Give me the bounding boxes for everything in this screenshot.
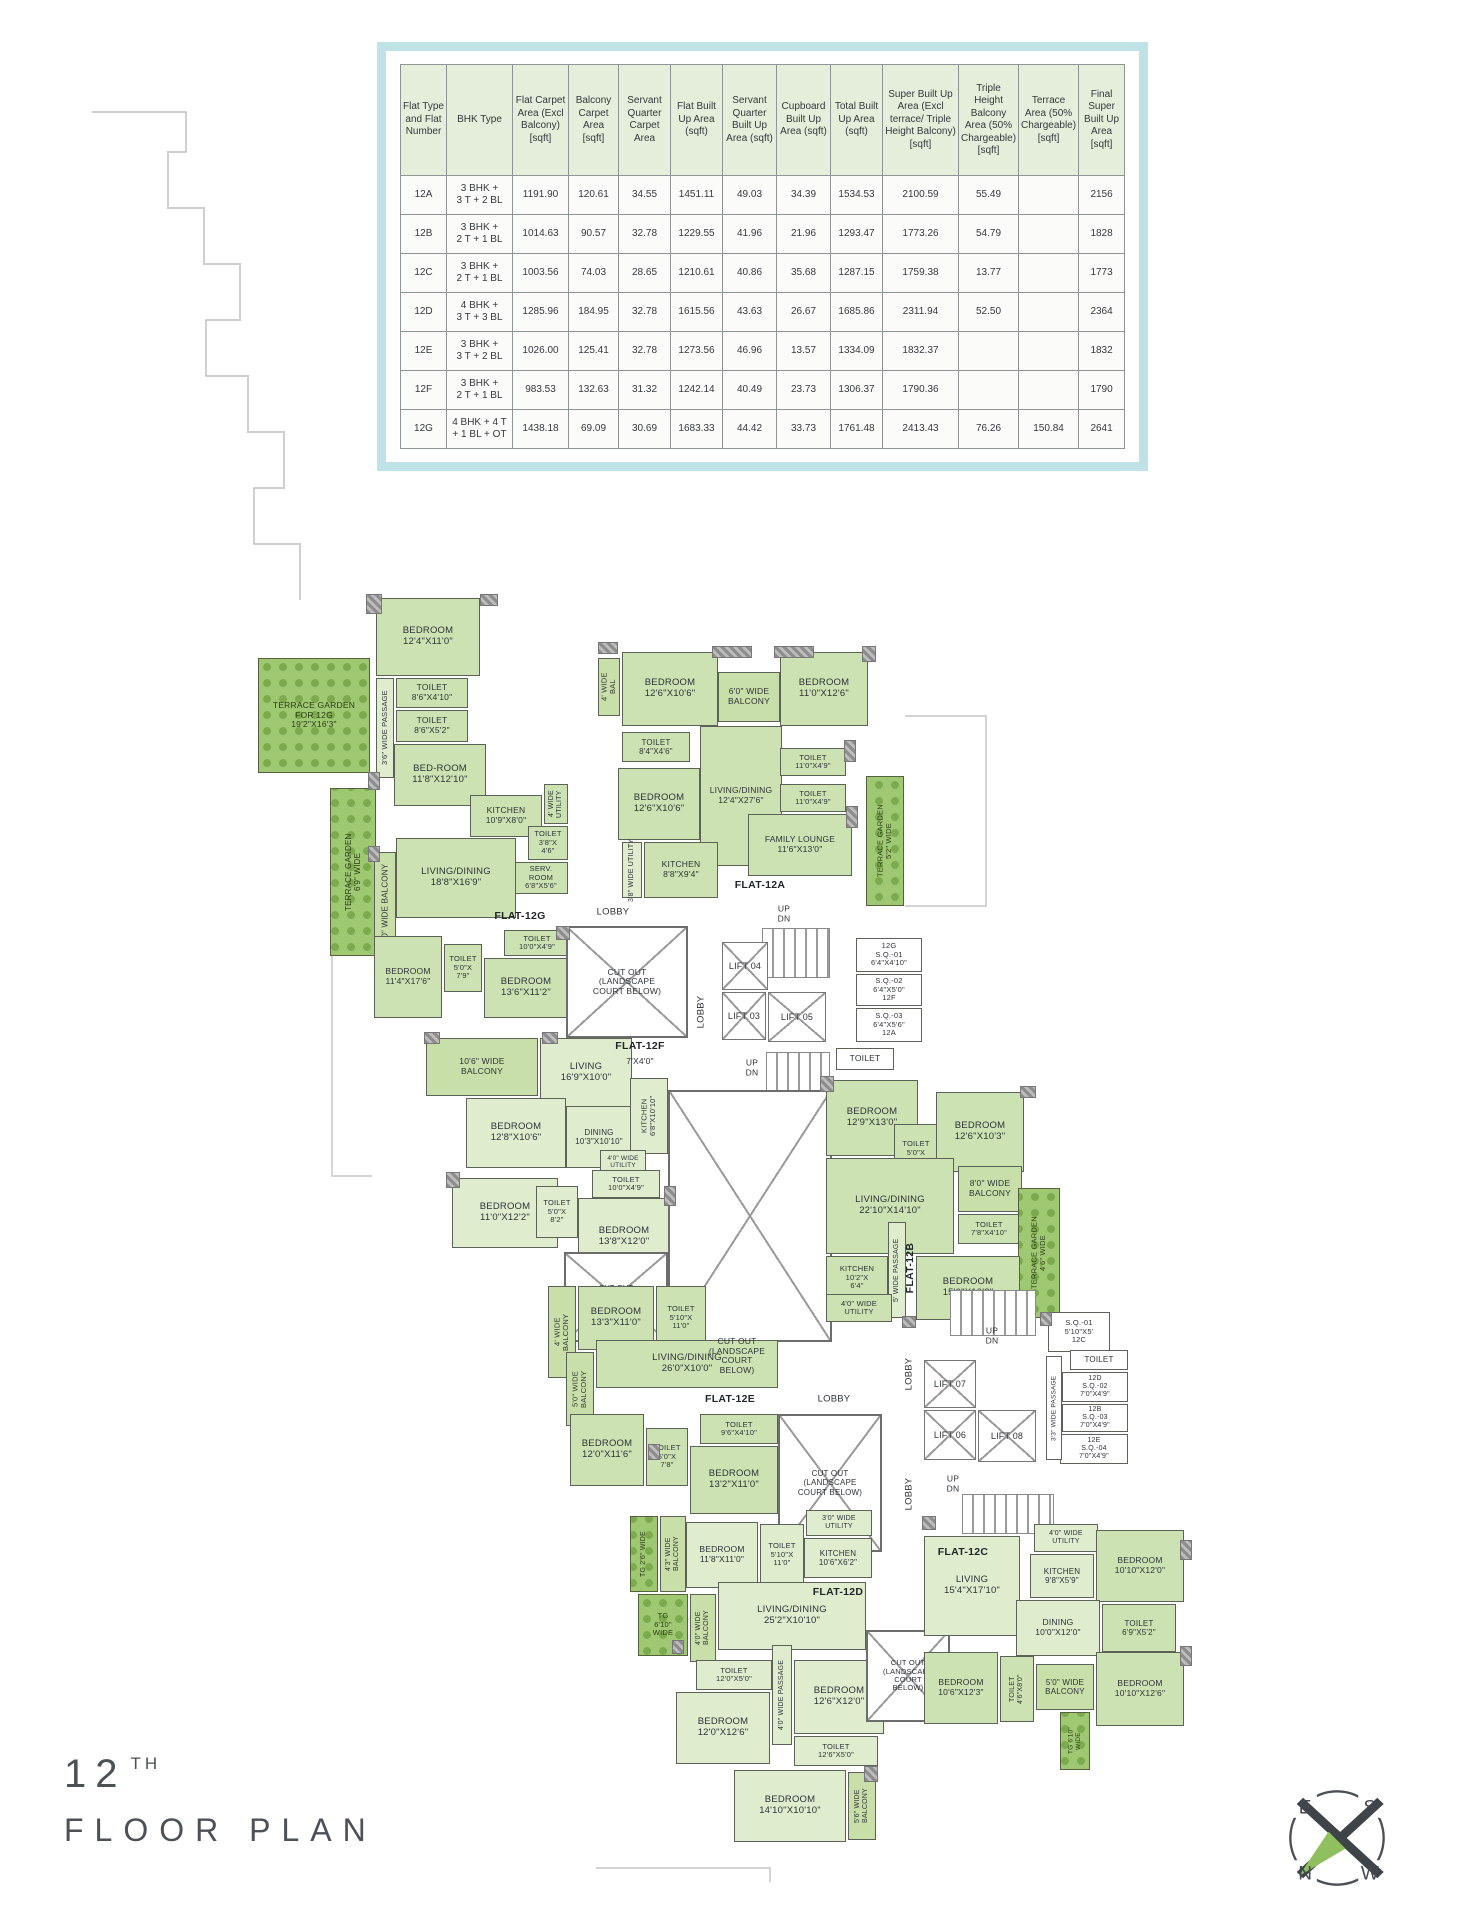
room: S.Q.-036'4"X5'6"12A bbox=[856, 1008, 922, 1042]
room: TOILET12'0"X5'0" bbox=[696, 1660, 772, 1690]
balcony: 4' WIDEBAL bbox=[598, 658, 620, 716]
text-label: LOBBY bbox=[905, 1478, 916, 1511]
column-block bbox=[542, 1032, 558, 1044]
lift: LIFT 06 bbox=[924, 1410, 976, 1460]
terrace-garden: TG 2'6" WIDE bbox=[630, 1516, 658, 1592]
room: TOILET10'0"X4'9" bbox=[592, 1170, 660, 1198]
text-label: CUT OUT(LANDSCAPECOURTBELOW) bbox=[709, 1337, 765, 1375]
room: 3'3" WIDE PASSAGE bbox=[1046, 1356, 1062, 1460]
column-block bbox=[368, 846, 380, 862]
text-label: 7'X4'0" bbox=[626, 1057, 654, 1067]
room: KITCHEN6'8"X10'10" bbox=[630, 1078, 668, 1154]
terrace-garden: TERRACE GARDEN6'9" WIDE bbox=[330, 788, 376, 956]
room: BEDROOM10'6"X12'3" bbox=[924, 1652, 998, 1724]
room: TOILET12'6"X5'0" bbox=[794, 1736, 878, 1766]
room: TOILET9'6"X4'10" bbox=[700, 1414, 778, 1444]
room: BEDROOM11'4"X17'6" bbox=[374, 936, 442, 1018]
flat-label: FLAT-12C bbox=[938, 1547, 989, 1559]
room: KITCHEN8'8"X9'4" bbox=[644, 842, 718, 898]
room: TOILET8'6"X4'10" bbox=[396, 678, 468, 708]
column-block bbox=[1180, 1646, 1192, 1666]
text-label: LOBBY bbox=[905, 1358, 916, 1391]
lift: LIFT 03 bbox=[722, 992, 766, 1040]
room: TOILET11'0"X4'9" bbox=[780, 784, 846, 812]
compass-west-label: W bbox=[1361, 1863, 1379, 1884]
room: TOILET bbox=[836, 1048, 894, 1070]
room: 12DS.Q.-027'0"X4'9" bbox=[1062, 1372, 1128, 1402]
floor-plan: TERRACE GARDENFOR 12G19'2"X16'3"TERRACE … bbox=[0, 0, 1457, 1914]
room: BEDROOM12'8"X10'6" bbox=[466, 1098, 566, 1168]
flat-label: FLAT-12A bbox=[735, 880, 786, 892]
room: TOILET bbox=[1070, 1350, 1128, 1370]
terrace-garden: TG 6'10"WIDE bbox=[1060, 1712, 1090, 1770]
balcony: 5'6" WIDEBALCONY bbox=[848, 1772, 876, 1840]
cutout: CUT OUT(LANDSCAPECOURT BELOW) bbox=[566, 926, 688, 1038]
room: TOILET5'10"X11'0" bbox=[760, 1524, 804, 1586]
floor-plan-page: Flat Type and Flat NumberBHK TypeFlat Ca… bbox=[0, 0, 1457, 1914]
column-block bbox=[846, 806, 858, 828]
room: 4'0" WIDEUTILITY bbox=[826, 1294, 892, 1322]
room: TOILET5'0"X7'9" bbox=[444, 944, 482, 992]
room: BEDROOM12'0"X12'6" bbox=[676, 1692, 770, 1764]
room: BEDROOM14'10"X10'10" bbox=[734, 1770, 846, 1842]
compass-north-label: N bbox=[1298, 1863, 1312, 1884]
column-block bbox=[774, 646, 814, 658]
room: 12BS.Q.-037'0"X4'9" bbox=[1062, 1404, 1128, 1432]
room: S.Q.-026'4"X5'0"12F bbox=[856, 974, 922, 1006]
text-label: UPDN bbox=[986, 1326, 999, 1345]
column-block bbox=[864, 1766, 878, 1782]
text-label: LOBBY bbox=[597, 908, 630, 919]
column-block bbox=[648, 1444, 660, 1460]
room: BEDROOM12'4"X11'0" bbox=[376, 598, 480, 676]
room: TOILET8'6"X5'2" bbox=[396, 710, 468, 742]
room: BEDROOM12'0"X11'6" bbox=[570, 1414, 644, 1486]
text-label: LOBBY bbox=[697, 996, 708, 1029]
room: BEDROOM13'6"X11'2" bbox=[484, 958, 568, 1018]
column-block bbox=[446, 1172, 460, 1188]
column-block bbox=[664, 1186, 676, 1206]
room: FAMILY LOUNGE11'6"X13'0" bbox=[748, 814, 852, 876]
room: 3'0" WIDEUTILITY bbox=[806, 1510, 872, 1536]
lift: LIFT 07 bbox=[924, 1360, 976, 1408]
lift: LIFT 08 bbox=[978, 1410, 1036, 1462]
room: LIVING/DINING18'8"X16'9" bbox=[396, 838, 516, 918]
terrace-garden: TERRACE GARDENFOR 12G19'2"X16'3" bbox=[258, 658, 370, 773]
room: 3'6" WIDE PASSAGE bbox=[376, 678, 394, 778]
room: 4'0" WIDEUTILITY bbox=[1034, 1524, 1098, 1552]
balcony: 5'0" WIDEBALCONY bbox=[1036, 1664, 1094, 1710]
room: KITCHEN9'8"X5'9" bbox=[1030, 1554, 1094, 1598]
floor-number-suffix: TH bbox=[131, 1754, 162, 1773]
room: TOILET4'6"X8'0" bbox=[1000, 1656, 1034, 1722]
room: BEDROOM11'8"X11'0" bbox=[686, 1522, 758, 1588]
column-block bbox=[1040, 1312, 1052, 1326]
column-block bbox=[1020, 1086, 1036, 1098]
column-block bbox=[844, 740, 856, 762]
room: BEDROOM12'6"X10'6" bbox=[618, 768, 700, 840]
balcony: 6'0" WIDEBALCONY bbox=[718, 672, 780, 722]
stairs bbox=[762, 928, 830, 978]
lift: LIFT 05 bbox=[768, 992, 826, 1042]
column-block bbox=[902, 1316, 916, 1328]
room: TOILET7'8"X4'10" bbox=[958, 1214, 1020, 1244]
room: BEDROOM10'10"X12'6" bbox=[1096, 1652, 1184, 1726]
column-block bbox=[820, 1076, 834, 1092]
floor-number: 12 bbox=[64, 1752, 127, 1796]
room: DINING10'0"X12'0" bbox=[1016, 1600, 1100, 1656]
text-label: UPDN bbox=[947, 1474, 960, 1493]
compass-south-label: S bbox=[1364, 1798, 1377, 1819]
room: 4'0" WIDE PASSAGE bbox=[772, 1645, 792, 1745]
terrace-garden: TERRACE GARDEN5'2" WIDE bbox=[866, 776, 904, 906]
column-block bbox=[598, 642, 618, 654]
compass-east-label: E bbox=[1299, 1798, 1312, 1819]
room: TOILET6'9"X5'2" bbox=[1102, 1604, 1176, 1652]
column-block bbox=[712, 646, 752, 658]
page-title-text: FLOOR PLAN bbox=[64, 1812, 377, 1849]
flat-label: FLAT-12G bbox=[494, 911, 545, 923]
room: 12ES.Q.-047'0"X4'9" bbox=[1060, 1434, 1128, 1464]
room: 4' WIDEUTILITY bbox=[544, 784, 568, 824]
balcony: 8'0" WIDEBALCONY bbox=[958, 1166, 1022, 1212]
column-block bbox=[366, 594, 382, 614]
lift: LIFT 04 bbox=[722, 942, 768, 990]
column-block bbox=[556, 926, 570, 940]
flat-label: FLAT-12D bbox=[813, 1587, 864, 1599]
text-label: LOBBY bbox=[818, 1395, 851, 1406]
room: 3'8" WIDE UTILITY bbox=[622, 842, 642, 898]
room: BEDROOM12'6"X10'6" bbox=[622, 652, 718, 726]
balcony: 10'6" WIDEBALCONY bbox=[426, 1038, 538, 1096]
text-label: UPDN bbox=[778, 904, 791, 923]
room: SERV.ROOM6'8"X5'6" bbox=[514, 862, 568, 894]
column-block bbox=[1180, 1540, 1192, 1560]
room: BEDROOM11'0"X12'6" bbox=[780, 652, 868, 726]
room: TOILET5'0"X8'2" bbox=[536, 1186, 578, 1238]
room: BEDROOM13'2"X11'0" bbox=[690, 1446, 778, 1514]
column-block bbox=[368, 772, 380, 790]
balcony: 4'0" WIDEBALCONY bbox=[690, 1594, 716, 1662]
flat-label: FLAT-12F bbox=[615, 1041, 664, 1053]
column-block bbox=[672, 1640, 684, 1654]
column-block bbox=[480, 594, 498, 606]
text-label: UPDN bbox=[746, 1058, 759, 1077]
room: BEDROOM10'10"X12'0" bbox=[1096, 1530, 1184, 1602]
room: KITCHEN10'6"X6'2" bbox=[804, 1538, 872, 1578]
column-block bbox=[424, 1032, 440, 1044]
room: TOILET11'0"X4'9" bbox=[780, 748, 846, 776]
flat-label: FLAT-12E bbox=[705, 1394, 755, 1406]
page-title-floor-number: 12TH bbox=[64, 1752, 161, 1797]
flat-label: FLAT-12B bbox=[905, 1243, 917, 1294]
room: TOILET8'4"X4'6" bbox=[622, 732, 690, 762]
room: TOILET3'8"X4'6" bbox=[528, 826, 568, 860]
column-block bbox=[862, 646, 876, 662]
room: 12GS.Q.-016'4"X4'10" bbox=[856, 938, 922, 972]
column-block bbox=[922, 1516, 936, 1530]
room: S.Q.-015'10"X5'12C bbox=[1048, 1312, 1110, 1352]
balcony: 4'3" WIDEBALCONY bbox=[660, 1516, 686, 1592]
compass-icon: E S N W bbox=[1272, 1768, 1402, 1908]
